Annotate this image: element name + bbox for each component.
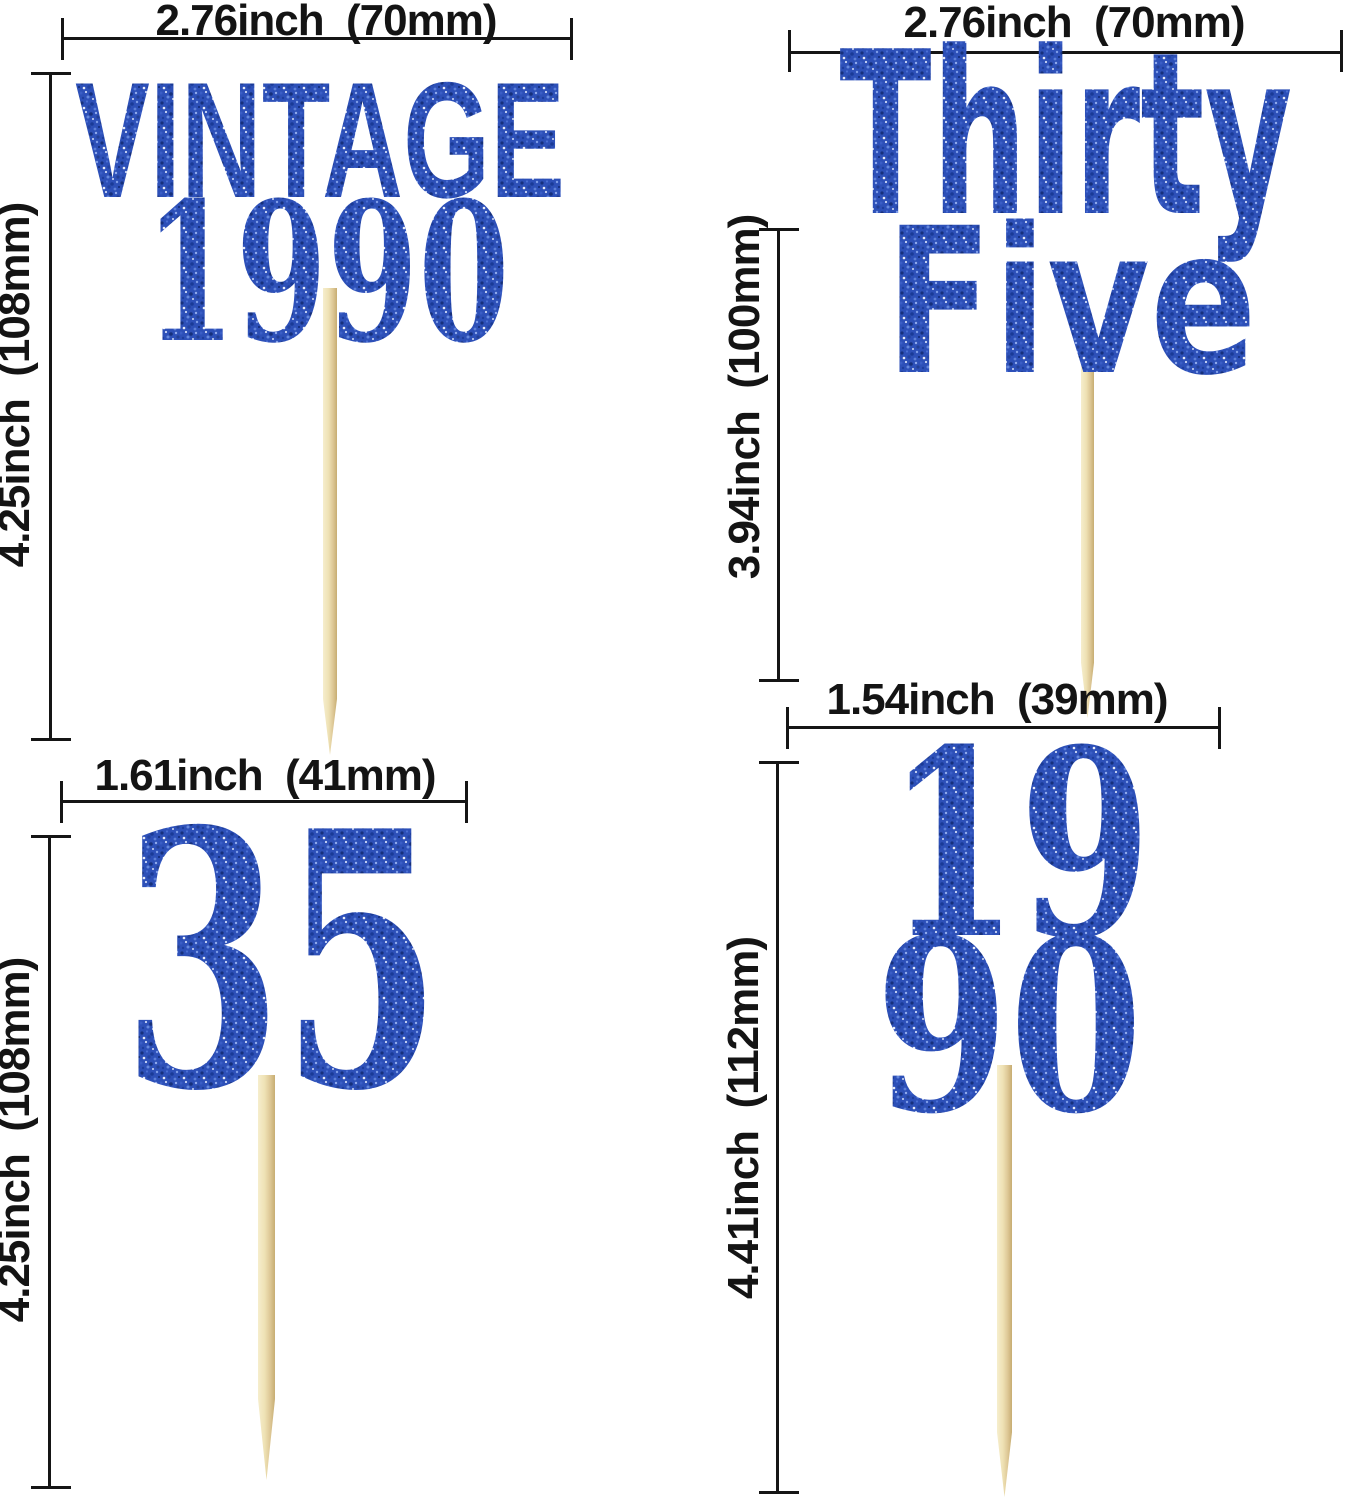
dimension-end-tick <box>788 30 791 72</box>
height-dimension-label: 4.25inch (108mm) <box>0 203 40 568</box>
width-dimension-line <box>63 37 572 40</box>
height-dimension-line <box>49 74 52 740</box>
height-dimension-line <box>48 837 51 1488</box>
height-dimension-line <box>777 230 780 681</box>
topper-35: 35 <box>100 810 480 1110</box>
dimension-end-tick <box>61 18 64 60</box>
height-dimension-line <box>776 763 779 1493</box>
dimension-end-tick <box>31 835 71 838</box>
dimension-end-tick <box>1340 30 1343 72</box>
dimension-end-tick <box>31 1486 71 1489</box>
topper-vintage-1990: VINTAGE 1990 <box>60 60 580 360</box>
topper-text-1990: 1990 <box>145 161 510 386</box>
topper-text-35: 35 <box>123 755 442 1169</box>
height-dimension-label: 4.25inch (108mm) <box>0 958 40 1323</box>
dimension-end-tick <box>1218 707 1221 749</box>
topper-text-90: 90 <box>875 887 1143 1167</box>
topper-thirty-five: Thirty Five <box>820 30 1340 390</box>
dimension-end-tick <box>759 679 799 682</box>
topper-text-five: Five <box>885 184 1257 420</box>
height-dimension-label: 4.41inch (112mm) <box>719 937 769 1299</box>
dimension-end-tick <box>759 1491 799 1494</box>
dimension-end-tick <box>570 18 573 60</box>
dimension-end-tick <box>786 707 789 749</box>
height-dimension-label: 3.94inch (100mm) <box>720 215 770 580</box>
dimension-end-tick <box>60 781 63 823</box>
dimension-end-tick <box>31 738 71 741</box>
product-dimension-diagram: 2.76inch (70mm) 4.25inch (108mm) VINTAGE… <box>0 0 1347 1500</box>
topper-1990-stacked: 19 90 <box>850 720 1170 1120</box>
dimension-end-tick <box>759 761 799 764</box>
dimension-end-tick <box>759 228 799 231</box>
